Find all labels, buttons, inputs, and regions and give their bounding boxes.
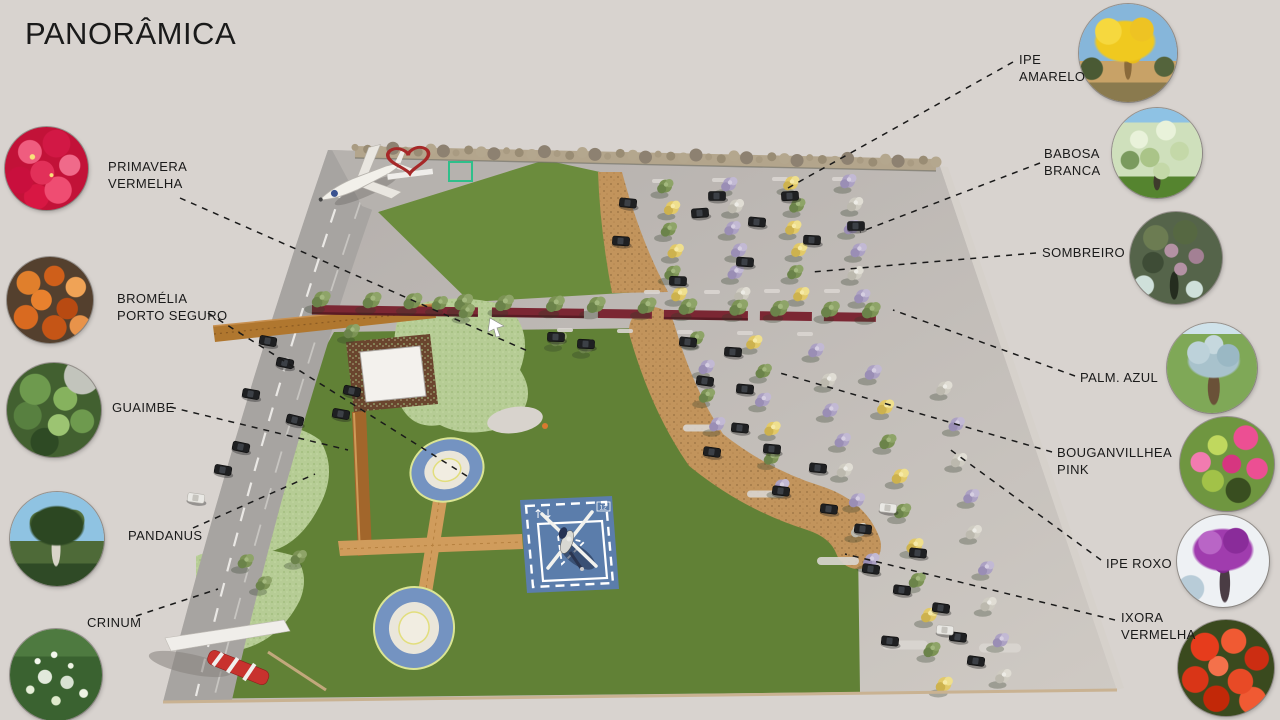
statue-figure — [542, 423, 548, 429]
plant-photo-pandanus — [10, 492, 104, 586]
car — [708, 192, 728, 204]
helipad: ↑↓ 12 — [520, 496, 619, 593]
plant-photo-ipe-amarelo — [1079, 4, 1177, 102]
plant-label-guaimbe: GUAIMBE — [112, 399, 175, 416]
plant-label-primavera-vermelha: PRIMAVERA VERMELHA — [108, 158, 187, 192]
helipad-size-mark: 12 — [600, 505, 608, 512]
plant-label-bromelia-porto-seguro: BROMÉLIA PORTO SEGURO — [117, 290, 228, 324]
plant-label-ipe-amarelo: IPE AMARELO — [1019, 51, 1085, 85]
plant-photo-sombreiro — [1130, 212, 1222, 304]
plant-photo-palm-azul — [1167, 323, 1257, 413]
plant-photo-babosa-branca — [1112, 108, 1202, 198]
plant-photo-ipe-roxo — [1177, 515, 1269, 607]
plant-photo-primavera-vermelha — [5, 127, 88, 210]
car — [186, 492, 207, 507]
plant-label-bouganvillhea-pink: BOUGANVILLHEA PINK — [1057, 444, 1172, 478]
plant-label-pandanus: PANDANUS — [128, 527, 202, 544]
plant-label-crinum: CRINUM — [87, 614, 141, 631]
plant-label-palm-azul: PALM. AZUL — [1080, 369, 1158, 386]
plant-label-ixora-vermelha: IXORA VERMELHA — [1121, 609, 1196, 643]
car — [781, 191, 802, 204]
car — [847, 222, 867, 234]
plant-photo-bouganvillhea-pink — [1180, 417, 1274, 511]
plant-photo-crinum — [10, 629, 102, 720]
plant-photo-guaimbe — [7, 363, 101, 457]
site-plan-rendering: ↑↓ 12 — [0, 0, 1280, 720]
plant-label-babosa-branca: BABOSA BRANCA — [1044, 145, 1101, 179]
car — [547, 332, 567, 345]
car — [577, 339, 598, 352]
car — [803, 235, 824, 248]
page-title: PANORÂMICA — [25, 16, 236, 52]
canopy-roof — [360, 346, 426, 402]
slide: ↑↓ 12 — [0, 0, 1280, 720]
plant-photo-bromelia-porto-seguro — [7, 257, 93, 343]
plant-label-ipe-roxo: IPE ROXO — [1106, 555, 1172, 572]
car — [669, 276, 689, 289]
plant-label-sombreiro: SOMBREIRO — [1042, 244, 1125, 261]
